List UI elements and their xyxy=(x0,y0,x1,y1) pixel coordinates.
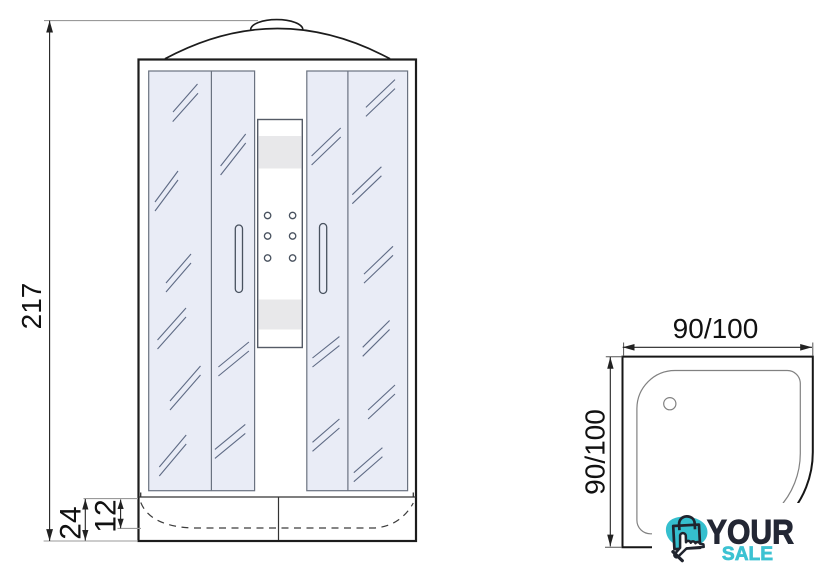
svg-text:24: 24 xyxy=(55,506,88,539)
svg-text:90/100: 90/100 xyxy=(673,313,759,344)
svg-text:12: 12 xyxy=(90,499,123,532)
svg-text:SALE: SALE xyxy=(722,544,773,565)
svg-text:90/100: 90/100 xyxy=(580,409,611,495)
svg-text:217: 217 xyxy=(16,283,47,330)
